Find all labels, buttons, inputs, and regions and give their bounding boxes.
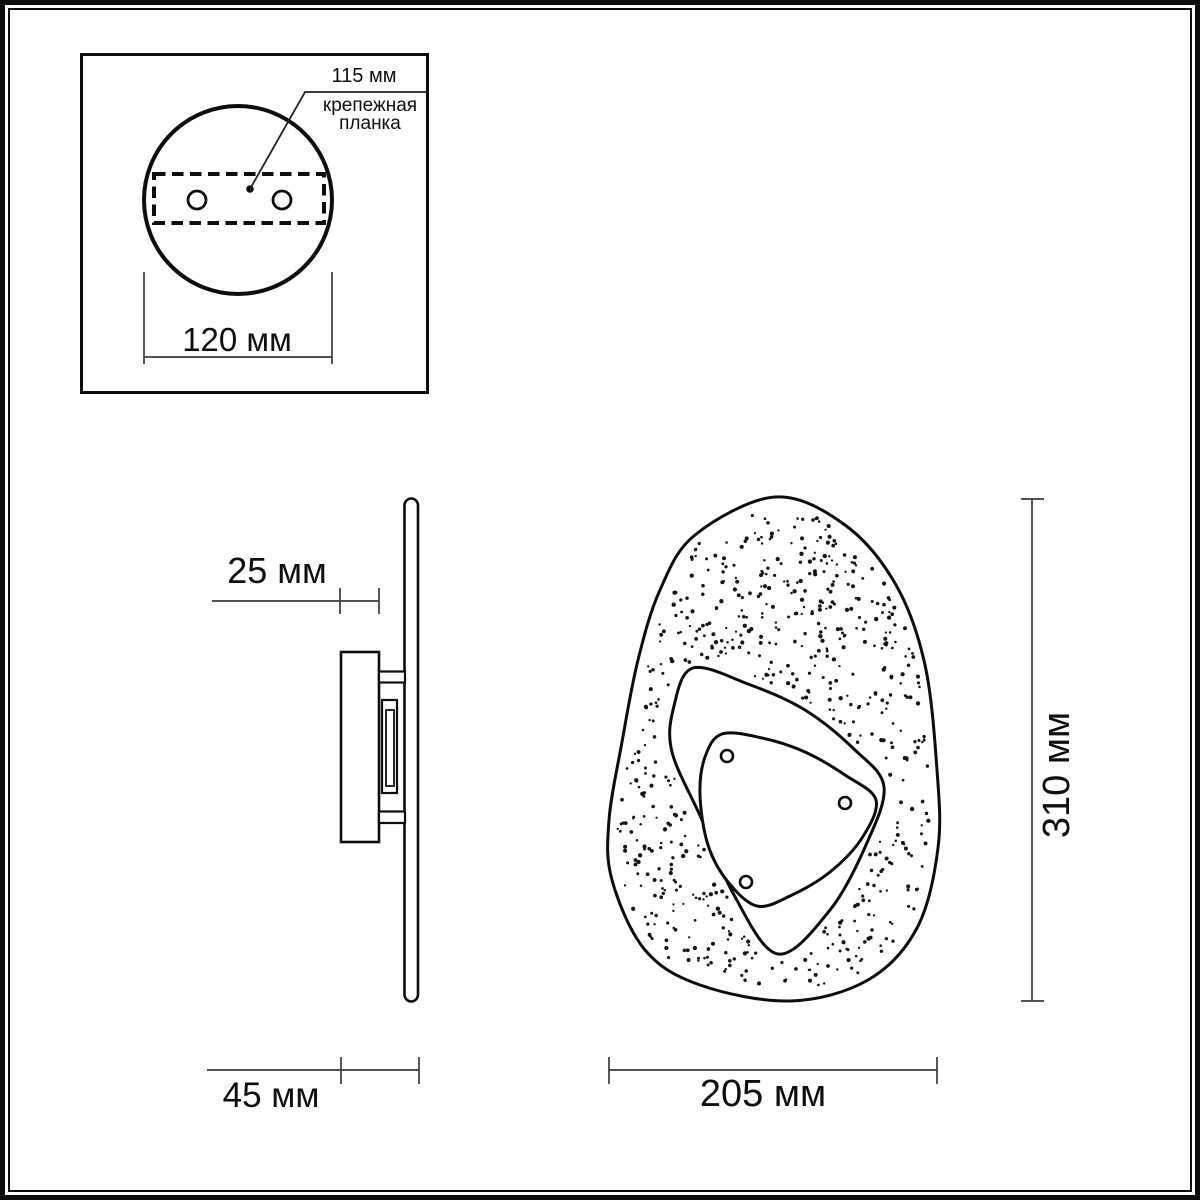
stipple-dot bbox=[856, 741, 859, 744]
stipple-dot bbox=[640, 884, 643, 887]
stipple-dot bbox=[856, 903, 860, 907]
stipple-dot bbox=[642, 844, 646, 848]
stipple-dot bbox=[706, 956, 709, 959]
stipple-dot bbox=[858, 888, 860, 890]
stipple-dot bbox=[857, 597, 861, 601]
stipple-dot bbox=[672, 603, 676, 607]
stipple-dot bbox=[786, 580, 789, 583]
stipple-dot bbox=[679, 885, 682, 888]
stipple-dot bbox=[829, 708, 832, 711]
stipple-dot bbox=[907, 905, 910, 908]
stipple-dot bbox=[827, 947, 830, 950]
stipple-dot bbox=[810, 656, 813, 659]
stipple-dot bbox=[870, 928, 873, 931]
stipple-dot bbox=[673, 813, 677, 817]
stipple-dot bbox=[721, 562, 724, 565]
stipple-dot bbox=[636, 860, 640, 864]
stipple-dot bbox=[877, 874, 880, 877]
stipple-dot bbox=[775, 626, 778, 629]
stipple-dot bbox=[731, 646, 735, 650]
stipple-dot bbox=[744, 969, 748, 973]
stipple-dot bbox=[790, 542, 792, 544]
stipple-dot bbox=[849, 703, 852, 706]
stipple-dot bbox=[722, 556, 726, 560]
stipple-dot bbox=[673, 927, 676, 930]
stipple-dot bbox=[921, 741, 924, 744]
stipple-dot bbox=[885, 631, 887, 633]
stipple-dot bbox=[901, 841, 905, 845]
stipple-dot bbox=[794, 967, 798, 971]
stipple-dot bbox=[804, 695, 808, 699]
stipple-dot bbox=[867, 913, 870, 916]
stipple-dot bbox=[639, 823, 642, 826]
stipple-dot bbox=[657, 698, 660, 701]
stipple-dot bbox=[819, 599, 823, 603]
stipple-dot bbox=[683, 642, 687, 646]
stipple-dot bbox=[817, 622, 821, 626]
stipple-dot bbox=[822, 570, 825, 573]
stipple-dot bbox=[739, 634, 742, 637]
stipple-dot bbox=[726, 641, 729, 644]
stipple-dot bbox=[724, 647, 726, 649]
stipple-dot bbox=[626, 767, 629, 770]
stipple-dot bbox=[649, 935, 652, 938]
stipple-dot bbox=[721, 570, 724, 573]
stipple-dot bbox=[777, 628, 780, 631]
stipple-dot bbox=[840, 919, 843, 922]
stipple-dot bbox=[811, 518, 815, 522]
stipple-dot bbox=[703, 957, 706, 960]
stipple-dot bbox=[824, 529, 826, 531]
base-depth-dimension bbox=[212, 588, 379, 614]
stipple-dot bbox=[664, 946, 668, 950]
stipple-dot bbox=[912, 907, 915, 910]
stipple-dot bbox=[649, 702, 652, 705]
stipple-dot bbox=[828, 535, 832, 539]
stipple-dot bbox=[701, 592, 705, 596]
stipple-dot bbox=[722, 926, 725, 929]
stipple-dot bbox=[861, 895, 864, 898]
stipple-dot bbox=[763, 559, 766, 562]
stipple-dot bbox=[710, 646, 714, 650]
stipple-dot bbox=[757, 538, 761, 542]
stipple-dot bbox=[786, 664, 790, 668]
stipple-dot bbox=[874, 693, 877, 696]
stipple-dot bbox=[869, 936, 873, 940]
base-depth-label: 25 мм bbox=[212, 552, 342, 589]
stipple-dot bbox=[903, 756, 907, 760]
stipple-dot bbox=[768, 641, 771, 644]
stipple-dot bbox=[858, 705, 861, 708]
stipple-dot bbox=[631, 907, 635, 911]
stipple-dot bbox=[662, 629, 666, 633]
stipple-dot bbox=[637, 750, 641, 754]
stipple-dot bbox=[666, 922, 669, 925]
stipple-dot bbox=[711, 632, 715, 636]
stipple-dot bbox=[723, 970, 726, 973]
stipple-dot bbox=[842, 645, 846, 649]
stipple-dot bbox=[809, 702, 811, 704]
stipple-dot bbox=[793, 640, 797, 644]
drawing-linework bbox=[0, 0, 1200, 1200]
stipple-dot bbox=[695, 630, 698, 633]
stipple-dot bbox=[891, 745, 895, 749]
stipple-dot bbox=[856, 930, 859, 933]
stipple-dot bbox=[727, 938, 730, 941]
stipple-dot bbox=[751, 957, 754, 960]
stipple-dot bbox=[886, 889, 888, 891]
stipple-dot bbox=[694, 919, 697, 922]
stipple-dot bbox=[909, 695, 913, 699]
stipple-dot bbox=[873, 644, 876, 647]
stipple-dot bbox=[745, 616, 748, 619]
stipple-dot bbox=[669, 871, 673, 875]
stipple-dot bbox=[883, 637, 887, 641]
stipple-dot bbox=[719, 650, 723, 654]
stipple-dot bbox=[711, 942, 715, 946]
stipple-dot bbox=[881, 868, 884, 871]
stipple-dot bbox=[720, 889, 724, 893]
stipple-dot bbox=[724, 565, 727, 568]
stipple-dot bbox=[879, 890, 882, 893]
stipple-dot bbox=[709, 961, 713, 965]
stipple-dot bbox=[668, 823, 672, 827]
stipple-dot bbox=[838, 926, 841, 929]
stipple-dot bbox=[818, 520, 821, 523]
stipple-dot bbox=[803, 589, 807, 593]
stipple-dot bbox=[687, 958, 691, 962]
stipple-dot bbox=[894, 641, 897, 644]
stipple-dot bbox=[847, 583, 850, 586]
stipple-dot bbox=[826, 562, 829, 565]
stipple-dot bbox=[864, 621, 867, 624]
stipple-dot bbox=[845, 608, 849, 612]
stipple-dot bbox=[895, 840, 898, 843]
stipple-dot bbox=[832, 657, 836, 661]
stipple-dot bbox=[822, 930, 826, 934]
stipple-dot bbox=[702, 848, 706, 852]
stipple-dot bbox=[658, 623, 660, 625]
stipple-dot bbox=[645, 706, 648, 709]
stipple-dot bbox=[803, 958, 807, 962]
technical-drawing-page: 115 мм крепежная планка 120 мм 25 мм 45 … bbox=[0, 0, 1200, 1200]
stipple-dot bbox=[746, 939, 750, 943]
stipple-dot bbox=[737, 593, 741, 597]
stipple-dot bbox=[839, 949, 842, 952]
stipple-dot bbox=[754, 675, 756, 677]
stipple-dot bbox=[763, 584, 767, 588]
stipple-dot bbox=[659, 633, 663, 637]
stipple-dot bbox=[761, 542, 763, 544]
stipple-dot bbox=[654, 914, 658, 918]
stipple-dot bbox=[810, 952, 813, 955]
stipple-dot bbox=[701, 624, 705, 628]
stipple-dot bbox=[831, 544, 835, 548]
stipple-dot bbox=[674, 881, 677, 884]
stipple-dot bbox=[868, 899, 871, 902]
stipple-dot bbox=[913, 750, 917, 754]
stipple-dot bbox=[652, 719, 655, 722]
stipple-dot bbox=[624, 884, 626, 886]
stipple-dot bbox=[690, 573, 694, 577]
stipple-dot bbox=[787, 616, 790, 619]
stipple-dot bbox=[882, 603, 886, 607]
stipple-dot bbox=[670, 868, 673, 871]
stipple-dot bbox=[738, 646, 742, 650]
stipple-dot bbox=[751, 514, 754, 517]
stipple-dot bbox=[926, 819, 930, 823]
stipple-dot bbox=[684, 849, 688, 853]
stipple-dot bbox=[808, 672, 811, 675]
stipple-dot bbox=[826, 588, 829, 591]
stipple-dot bbox=[853, 920, 856, 923]
stipple-dot bbox=[754, 532, 756, 534]
stipple-dot bbox=[766, 521, 770, 525]
backplate-circle bbox=[144, 106, 332, 294]
stipple-dot bbox=[715, 606, 719, 610]
stipple-dot bbox=[655, 705, 658, 708]
stipple-dot bbox=[684, 658, 688, 662]
stipple-dot bbox=[638, 786, 641, 789]
stipple-dot bbox=[754, 951, 757, 954]
stipple-dot bbox=[765, 603, 767, 605]
stipple-dot bbox=[826, 540, 830, 544]
stipple-dot bbox=[803, 606, 805, 608]
stipple-dot bbox=[849, 607, 853, 611]
stipple-dot bbox=[786, 681, 790, 685]
stipple-dot bbox=[768, 668, 770, 670]
stipple-dot bbox=[891, 647, 894, 650]
stipple-dot bbox=[735, 630, 737, 632]
stipple-dot bbox=[836, 627, 840, 631]
stipple-dot bbox=[858, 947, 860, 949]
stipple-dot bbox=[920, 832, 923, 835]
stipple-dot bbox=[660, 879, 663, 882]
stipple-dot bbox=[647, 665, 649, 667]
front-width-label: 205 мм bbox=[663, 1076, 863, 1113]
stipple-dot bbox=[697, 959, 699, 961]
stipple-dot bbox=[619, 830, 622, 833]
stipple-dot bbox=[679, 631, 682, 634]
stipple-dot bbox=[818, 634, 822, 638]
stipple-dot bbox=[646, 872, 650, 876]
stipple-dot bbox=[708, 621, 712, 625]
stipple-dot bbox=[691, 645, 694, 648]
stipple-dot bbox=[855, 627, 858, 630]
stipple-dot bbox=[916, 746, 920, 750]
stipple-dot bbox=[900, 730, 902, 732]
stipple-dot bbox=[746, 951, 749, 954]
stipple-dot bbox=[762, 678, 764, 680]
stipple-dot bbox=[765, 573, 768, 576]
stipple-dot bbox=[833, 603, 836, 606]
stipple-dot bbox=[770, 532, 774, 536]
stipple-dot bbox=[698, 897, 701, 900]
stipple-dot bbox=[820, 639, 824, 643]
stipple-dot bbox=[743, 624, 747, 628]
stipple-dot bbox=[697, 854, 700, 857]
stipple-dot bbox=[860, 958, 863, 961]
stipple-dot bbox=[672, 591, 676, 595]
stipple-dot bbox=[632, 816, 635, 819]
stipple-dot bbox=[801, 518, 804, 521]
stipple-dot bbox=[882, 668, 886, 672]
stipple-dot bbox=[707, 905, 709, 907]
stipple-dot bbox=[890, 741, 893, 744]
stipple-dot bbox=[834, 679, 838, 683]
stipple-dot bbox=[871, 600, 874, 603]
stipple-dot bbox=[892, 722, 895, 725]
stipple-dot bbox=[882, 581, 886, 585]
stipple-dot bbox=[740, 545, 744, 549]
stipple-dot bbox=[646, 922, 649, 925]
stipple-dot bbox=[728, 959, 732, 963]
stipple-dot bbox=[876, 602, 880, 606]
stipple-dot bbox=[814, 973, 818, 977]
stipple-dot bbox=[831, 583, 835, 587]
stipple-dot bbox=[680, 611, 683, 614]
stipple-dot bbox=[716, 907, 720, 911]
glass-plate-profile bbox=[405, 499, 419, 1002]
hole-spacing-label: 115 мм bbox=[300, 66, 428, 86]
stipple-dot bbox=[907, 852, 910, 855]
stipple-dot bbox=[642, 729, 645, 732]
stipple-dot bbox=[644, 744, 646, 746]
stipple-dot bbox=[725, 652, 727, 654]
stipple-dot bbox=[630, 782, 632, 784]
stipple-dot bbox=[667, 956, 670, 959]
stipple-dot bbox=[800, 536, 804, 540]
stipple-dot bbox=[851, 673, 854, 676]
stipple-dot bbox=[670, 805, 674, 809]
stipple-dot bbox=[889, 675, 893, 679]
stipple-dot bbox=[684, 835, 687, 838]
stipple-dot bbox=[795, 678, 799, 682]
stipple-dot bbox=[913, 656, 915, 658]
stipple-dot bbox=[850, 966, 853, 969]
stipple-dot bbox=[799, 579, 803, 583]
stipple-dot bbox=[698, 542, 701, 545]
stipple-dot bbox=[661, 672, 664, 675]
stipple-dot bbox=[870, 732, 874, 736]
stipple-dot bbox=[900, 672, 904, 676]
stipple-dot bbox=[690, 609, 694, 613]
stipple-dot bbox=[808, 979, 812, 983]
stipple-dot bbox=[829, 590, 833, 594]
stipple-dot bbox=[700, 653, 704, 657]
stipple-dot bbox=[813, 572, 817, 576]
stipple-dot bbox=[717, 655, 719, 657]
stipple-dot bbox=[731, 638, 734, 641]
stipple-dot bbox=[839, 696, 843, 700]
stipple-dot bbox=[855, 597, 858, 600]
stipple-dot bbox=[846, 695, 848, 697]
stipple-dot bbox=[838, 665, 840, 667]
stipple-dot bbox=[869, 696, 872, 699]
panel-hole-right bbox=[839, 797, 851, 809]
stipple-dot bbox=[815, 516, 819, 520]
stipple-dot bbox=[889, 631, 892, 634]
stipple-dot bbox=[827, 524, 831, 528]
stipple-dot bbox=[879, 851, 882, 854]
stipple-dot bbox=[916, 675, 920, 679]
stipple-dot bbox=[694, 555, 696, 557]
stipple-dot bbox=[800, 598, 804, 602]
stipple-dot bbox=[843, 553, 847, 557]
stipple-dot bbox=[828, 698, 832, 702]
stipple-dot bbox=[828, 605, 832, 609]
stipple-dot bbox=[801, 613, 803, 615]
stipple-dot bbox=[861, 577, 864, 580]
stipple-dot bbox=[889, 693, 892, 696]
stipple-dot bbox=[674, 614, 677, 617]
stipple-dot bbox=[824, 627, 827, 630]
stipple-dot bbox=[885, 757, 888, 760]
stipple-dot bbox=[743, 979, 746, 982]
stipple-dot bbox=[829, 687, 832, 690]
stipple-dot bbox=[835, 574, 839, 578]
stipple-dot bbox=[831, 559, 833, 561]
stipple-dot bbox=[761, 612, 764, 615]
stipple-dot bbox=[783, 979, 787, 983]
stipple-dot bbox=[636, 872, 639, 875]
stipple-dot bbox=[880, 698, 884, 702]
stipple-dot bbox=[906, 884, 910, 888]
stipple-dot bbox=[922, 735, 925, 738]
stipple-dot bbox=[851, 584, 855, 588]
stipple-dot bbox=[870, 869, 874, 873]
stipple-dot bbox=[916, 701, 920, 705]
stipple-dot bbox=[887, 596, 891, 600]
stipple-dot bbox=[923, 738, 926, 741]
stipple-dot bbox=[680, 818, 683, 821]
stipple-dot bbox=[771, 967, 774, 970]
stipple-dot bbox=[667, 683, 670, 686]
stipple-dot bbox=[799, 560, 802, 563]
stipple-dot bbox=[896, 833, 900, 837]
stipple-dot bbox=[819, 630, 823, 634]
stipple-dot bbox=[808, 691, 811, 694]
stipple-dot bbox=[677, 632, 680, 635]
stipple-dot bbox=[826, 964, 830, 968]
panel-hole-top bbox=[721, 750, 733, 762]
stipple-dot bbox=[855, 564, 857, 566]
stipple-dot bbox=[725, 627, 727, 629]
stipple-dot bbox=[836, 563, 838, 565]
stipple-dot bbox=[705, 557, 708, 560]
stipple-dot bbox=[879, 738, 883, 742]
stipple-dot bbox=[847, 958, 851, 962]
stipple-dot bbox=[814, 552, 816, 554]
stipple-dot bbox=[852, 720, 855, 723]
stipple-dot bbox=[819, 536, 822, 539]
stipple-dot bbox=[759, 573, 763, 577]
mounting-bar-label-line2: планка bbox=[288, 115, 452, 133]
stipple-dot bbox=[712, 883, 716, 887]
stipple-dot bbox=[907, 888, 910, 891]
stipple-dot bbox=[728, 930, 730, 932]
mounting-bar-dashed-outline bbox=[154, 174, 324, 223]
stipple-dot bbox=[905, 695, 908, 698]
stipple-dot bbox=[735, 577, 737, 579]
stipple-dot bbox=[759, 592, 763, 596]
mounting-bar-label: крепежная планка bbox=[288, 97, 452, 133]
front-view bbox=[608, 497, 1044, 1084]
stipple-dot bbox=[890, 612, 894, 616]
stipple-dot bbox=[672, 903, 674, 905]
stipple-dot bbox=[843, 635, 846, 638]
stipple-dot bbox=[770, 661, 773, 664]
